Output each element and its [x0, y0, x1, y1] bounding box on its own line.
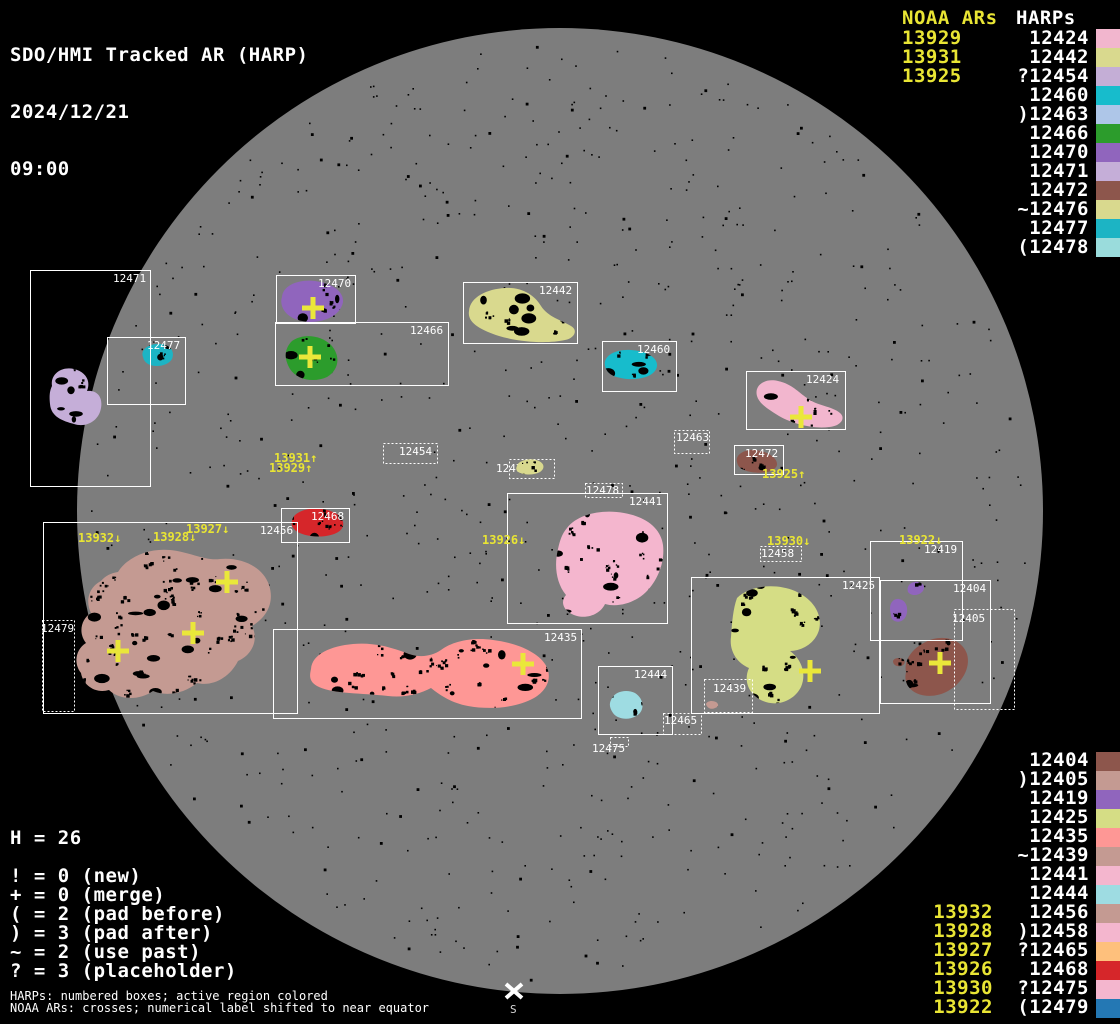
- harp-color-swatch: [1096, 847, 1120, 866]
- harp-column-header: HARPs: [1016, 9, 1076, 28]
- harp-box-label-12435: 12435: [544, 631, 577, 644]
- harp-item: (12478: [1000, 238, 1089, 257]
- harp-color-swatch: [1096, 885, 1120, 904]
- harp-color-swatch: [1096, 809, 1120, 828]
- title-time: 09:00: [10, 160, 308, 179]
- harp-box-label-12456: 12456: [260, 524, 293, 537]
- harp-box-label-12466: 12466: [410, 324, 443, 337]
- harp-box-label-12460: 12460: [637, 343, 670, 356]
- noaa-label-13925: 13925↑: [762, 467, 805, 481]
- harp-color-swatch: [1096, 86, 1120, 105]
- harp-box-label-12465: 12465: [664, 714, 697, 727]
- title-date: 2024/12/21: [10, 103, 308, 122]
- harp-color-swatch: [1096, 866, 1120, 885]
- noaa-label-13927: 13927↓: [186, 522, 229, 536]
- active-region-12444: [610, 691, 643, 719]
- harp-tracking-plot: 1247112477124701246612442124601242412463…: [0, 0, 1120, 1024]
- title-line: SDO/HMI Tracked AR (HARP): [10, 46, 308, 65]
- noaa-label-13930: 13930↓: [767, 534, 810, 548]
- harp-color-swatch: [1096, 238, 1120, 257]
- harp-box-label-12441: 12441: [629, 495, 662, 508]
- harp-box-label-12405: 12405: [952, 612, 985, 625]
- footer-note-noaa: NOAA ARs: crosses; numerical label shift…: [10, 1002, 429, 1014]
- harp-box-label-12442: 12442: [539, 284, 572, 297]
- harp-box-label-12463: 12463: [676, 431, 709, 444]
- harp-box-label-12470: 12470: [318, 277, 351, 290]
- harp-color-swatch: [1096, 124, 1120, 143]
- harp-box-label-12471: 12471: [113, 272, 146, 285]
- harp-box-label-12404: 12404: [953, 582, 986, 595]
- harp-color-swatch: [1096, 980, 1120, 999]
- page-title: SDO/HMI Tracked AR (HARP) 2024/12/21 09:…: [10, 8, 308, 217]
- harp-box-label-12424: 12424: [806, 373, 839, 386]
- harp-color-swatch: [1096, 961, 1120, 980]
- noaa-ar-list-bottom: 139321392813927139261393013922: [933, 903, 993, 1017]
- harp-color-swatch: [1096, 771, 1120, 790]
- harp-box-label-12468: 12468: [311, 510, 344, 523]
- harp-box-label-12479: 12479: [41, 622, 74, 635]
- harp-color-swatch: [1096, 105, 1120, 124]
- harp-box-label-12458: 12458: [761, 547, 794, 560]
- harp-list-bottom: 12404)12405124191242512435~1243912441124…: [1000, 751, 1089, 1017]
- noaa-ar-item: 13922: [933, 998, 993, 1017]
- harp-color-swatch: [1096, 29, 1120, 48]
- harp-item: (12479: [1000, 998, 1089, 1017]
- harp-box-label-12477: 12477: [147, 339, 180, 352]
- noaa-label-13932: 13932↓: [78, 531, 121, 545]
- south-label: S: [510, 1003, 517, 1016]
- harp-color-swatch: [1096, 942, 1120, 961]
- harp-box-label-12444: 12444: [634, 668, 667, 681]
- noaa-ar-list-top: 139291393113925: [902, 29, 962, 86]
- harp-color-swatch: [1096, 181, 1120, 200]
- harp-color-swatch: [1096, 200, 1120, 219]
- harp-color-swatch: [1096, 162, 1120, 181]
- harp-color-swatch: [1096, 143, 1120, 162]
- harp-box-label-12425: 12425: [842, 579, 875, 592]
- harp-color-swatch: [1096, 923, 1120, 942]
- harp-color-swatch: [1096, 828, 1120, 847]
- noaa-label-13929: 13929↑: [269, 461, 312, 475]
- harp-box-label-12454: 12454: [399, 445, 432, 458]
- harp-box-label-12478: 12478: [586, 484, 619, 497]
- harp-color-swatch: [1096, 752, 1120, 771]
- harp-color-swatch: [1096, 999, 1120, 1018]
- legend-line: ? = 3 (placeholder): [10, 962, 237, 981]
- harp-color-swatch: [1096, 67, 1120, 86]
- noaa-label-13926: 13926↓: [482, 533, 525, 547]
- harp-color-swatch: [1096, 904, 1120, 923]
- harp-color-swatch: [1096, 790, 1120, 809]
- noaa-column-header: NOAA ARs: [902, 9, 998, 28]
- harp-box-label-12439: 12439: [713, 682, 746, 695]
- flag-legend: ! = 0 (new)+ = 0 (merge)( = 2 (pad befor…: [10, 867, 237, 981]
- harp-list-top: 1242412442?1245412460)124631246612470124…: [1000, 29, 1089, 257]
- harp-count: H = 26: [10, 829, 82, 848]
- harp-color-swatch: [1096, 219, 1120, 238]
- noaa-ar-item: 13925: [902, 67, 962, 86]
- noaa-label-13922: 13922↓: [899, 533, 942, 547]
- harp-box-label-12475: 12475: [592, 742, 625, 755]
- harp-box-label-12472: 12472: [745, 447, 778, 460]
- harp-color-swatch: [1096, 48, 1120, 67]
